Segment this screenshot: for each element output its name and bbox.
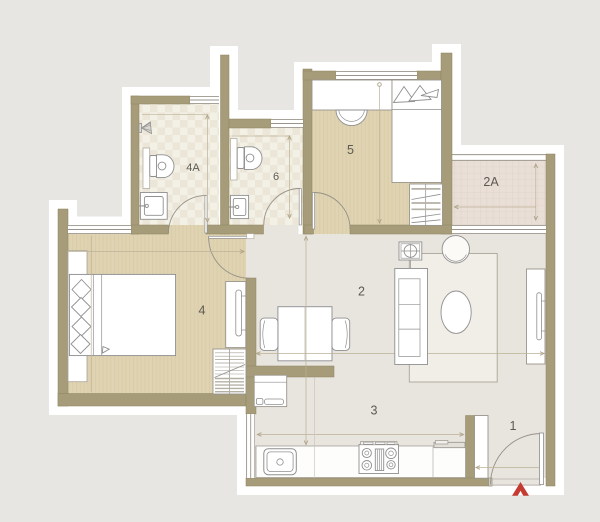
svg-text:6: 6 [273,171,279,183]
svg-text:5: 5 [347,143,354,157]
svg-text:1: 1 [510,419,517,433]
svg-text:3: 3 [371,404,378,418]
svg-text:2A: 2A [483,175,499,189]
svg-text:4: 4 [199,304,206,318]
svg-text:2: 2 [358,285,365,299]
svg-text:4A: 4A [186,162,200,174]
